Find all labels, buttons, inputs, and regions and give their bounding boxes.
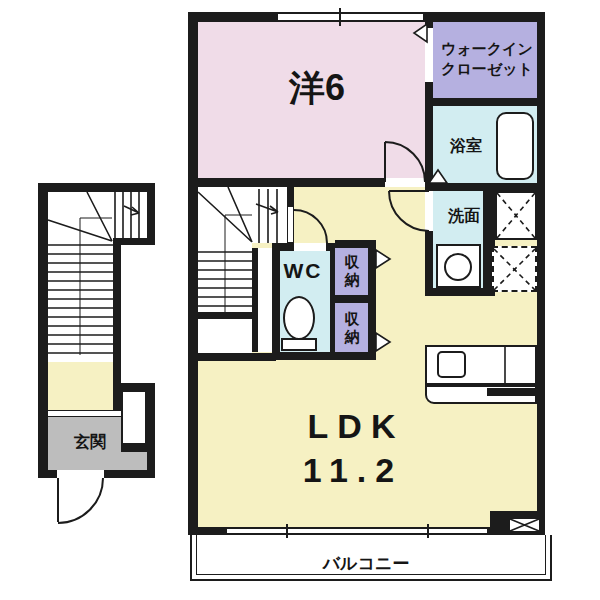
stair-side-gap — [258, 248, 272, 352]
wc-door-opening — [294, 243, 326, 251]
wall — [433, 98, 537, 106]
room-label-wic-line2: クローゼット — [441, 60, 533, 77]
wall — [190, 353, 276, 361]
room-label-ldk-size: 11.2 — [303, 451, 403, 490]
corner-x-box — [508, 517, 541, 533]
bathtub — [496, 112, 534, 180]
entrance-side-box — [121, 390, 147, 445]
kitchen-counter-edge — [487, 388, 537, 396]
closet-x-box — [495, 191, 537, 240]
room-label-bath: 浴室 — [450, 137, 482, 155]
under-stair-space — [198, 319, 252, 353]
room-label-storage-lower: 収納 — [343, 310, 360, 346]
wall — [121, 445, 155, 452]
washing-machine-pan — [436, 244, 481, 288]
room-label-entrance: 玄関 — [74, 433, 106, 451]
wall — [272, 352, 376, 360]
room-label-ldk: LDK — [308, 407, 405, 446]
room-label-western: 洋6 — [289, 67, 345, 108]
dashed-x-box — [492, 246, 537, 292]
floorplan-canvas: 洋6 ウォークイン クローゼット 浴室 洗面 WC 収納 収納 LDK 11.2… — [0, 0, 600, 600]
wash-door-opening — [425, 191, 433, 231]
kitchen-sink — [437, 351, 466, 378]
room-label-wic-line1: ウォークイン — [441, 40, 533, 57]
building-notch — [121, 245, 158, 383]
room-label-wash: 洗面 — [448, 207, 480, 225]
room-label-storage-upper: 収納 — [343, 253, 360, 289]
toilet-bowl — [283, 296, 315, 340]
toilet-tank — [281, 338, 317, 351]
room-label-wc: WC — [284, 259, 323, 283]
stair-landing — [48, 362, 113, 410]
wic-door-opening — [425, 28, 433, 82]
wall — [190, 312, 252, 319]
inner-stair-upper — [198, 187, 287, 243]
room-label-balcony: バルコニー — [323, 554, 410, 574]
wall — [272, 243, 280, 360]
inner-stair-shaft — [198, 243, 252, 312]
wall — [368, 240, 376, 352]
stairwell-upper-area — [48, 192, 147, 238]
wall — [287, 187, 294, 208]
wall — [335, 295, 368, 303]
window-top — [278, 12, 423, 22]
entrance-door-opening — [57, 470, 104, 478]
wall — [425, 183, 537, 191]
stairwell-shaft — [48, 238, 113, 362]
wall — [425, 288, 495, 296]
entrance-step-edge — [48, 410, 121, 417]
wc-door-leaf — [287, 206, 294, 243]
western-door-opening — [385, 178, 425, 187]
window-bottom — [227, 527, 487, 535]
